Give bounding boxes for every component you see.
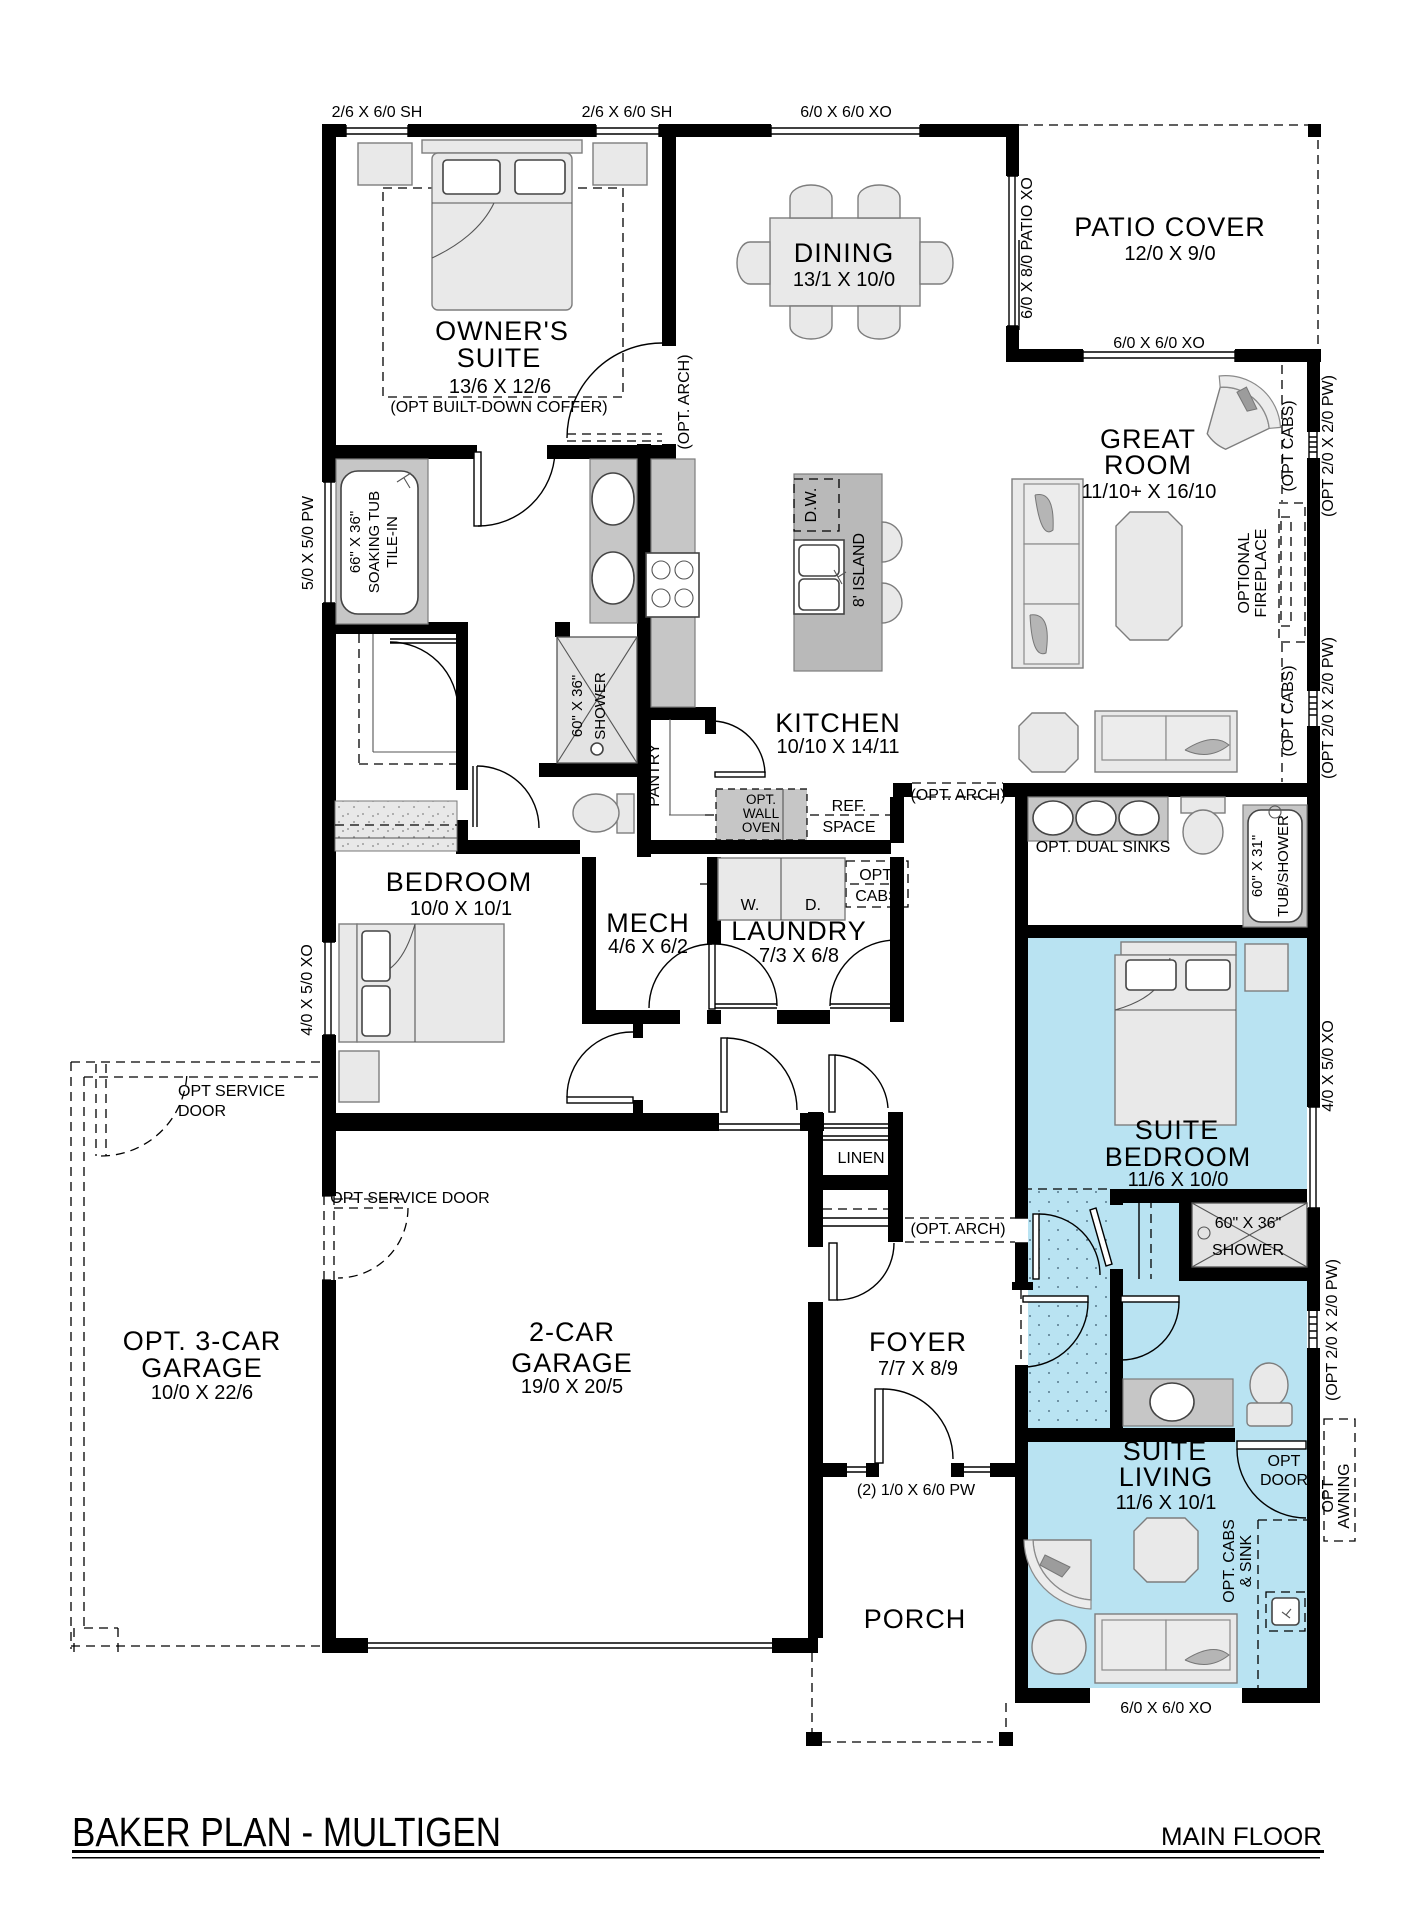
svg-text:(OPT 2/0 X 2/0 PW): (OPT 2/0 X 2/0 PW) (1320, 375, 1337, 517)
svg-text:SUITE: SUITE (457, 343, 542, 373)
svg-text:60" X 31": 60" X 31" (1249, 835, 1266, 897)
svg-text:13/1 X 10/0: 13/1 X 10/0 (793, 269, 895, 291)
svg-text:FOYER: FOYER (869, 1327, 967, 1357)
svg-text:2/6 X 6/0 SH: 2/6 X 6/0 SH (332, 104, 423, 121)
svg-text:OPT: OPT (1320, 1479, 1337, 1512)
svg-text:SUITE: SUITE (1135, 1115, 1220, 1145)
svg-text:(OPT. ARCH): (OPT. ARCH) (910, 1221, 1005, 1238)
svg-text:BEDROOM: BEDROOM (386, 867, 533, 897)
svg-text:CABS: CABS (855, 888, 899, 905)
svg-text:OPT SERVICE: OPT SERVICE (178, 1083, 285, 1100)
svg-text:(OPT CABS): (OPT CABS) (1280, 665, 1297, 756)
svg-text:DOOR: DOOR (1260, 1472, 1308, 1489)
svg-text:5/0 X 5/0 PW: 5/0 X 5/0 PW (300, 495, 317, 590)
svg-text:60" X 36": 60" X 36" (1215, 1215, 1282, 1232)
svg-text:MECH: MECH (606, 908, 690, 938)
svg-text:(OPT. ARCH): (OPT. ARCH) (676, 354, 693, 449)
svg-text:TUB/SHOWER: TUB/SHOWER (1275, 815, 1292, 917)
svg-text:(2) 1/0 X 6/0 PW: (2) 1/0 X 6/0 PW (857, 1482, 976, 1499)
svg-text:8' ISLAND: 8' ISLAND (851, 533, 868, 607)
svg-text:D.: D. (805, 897, 821, 914)
svg-text:FIREPLACE: FIREPLACE (1253, 529, 1270, 618)
svg-text:(OPT. ARCH): (OPT. ARCH) (910, 787, 1005, 804)
svg-text:13/6 X 12/6: 13/6 X 12/6 (449, 376, 551, 398)
svg-text:SHOWER: SHOWER (592, 672, 609, 740)
svg-text:OPT. 3-CAR: OPT. 3-CAR (123, 1326, 282, 1356)
svg-text:10/0 X 22/6: 10/0 X 22/6 (151, 1382, 253, 1404)
svg-text:4/6 X 6/2: 4/6 X 6/2 (608, 936, 688, 958)
svg-text:D.W.: D.W. (803, 488, 820, 523)
svg-text:OPT. DUAL SINKS: OPT. DUAL SINKS (1036, 839, 1171, 856)
svg-text:& SINK: & SINK (1238, 1534, 1255, 1587)
svg-text:SHOWER: SHOWER (1212, 1242, 1284, 1259)
svg-text:6/0 X 6/0 XO: 6/0 X 6/0 XO (1113, 335, 1205, 352)
svg-text:OPT. CABS: OPT. CABS (1221, 1519, 1238, 1603)
svg-text:LIVING: LIVING (1119, 1462, 1214, 1492)
svg-text:LAUNDRY: LAUNDRY (731, 916, 867, 946)
svg-text:2/6 X 6/0 SH: 2/6 X 6/0 SH (582, 104, 673, 121)
svg-text:(OPT 2/0 X 2/0 PW): (OPT 2/0 X 2/0 PW) (1324, 1259, 1341, 1401)
svg-text:OPT.: OPT. (859, 867, 895, 884)
svg-text:10/10 X 14/11: 10/10 X 14/11 (776, 736, 899, 758)
svg-text:(OPT 2/0 X 2/0 PW): (OPT 2/0 X 2/0 PW) (1320, 637, 1337, 779)
svg-text:OPTIONAL: OPTIONAL (1236, 532, 1253, 613)
svg-text:OWNER'S: OWNER'S (435, 316, 569, 346)
svg-text:W.: W. (741, 897, 760, 914)
svg-text:PANTRY: PANTRY (646, 743, 663, 807)
svg-text:OPT: OPT (1268, 1453, 1301, 1470)
svg-text:6/0 X 6/0 XO: 6/0 X 6/0 XO (800, 104, 892, 121)
svg-text:OPT.: OPT. (746, 792, 776, 807)
svg-text:4/0 X 5/0 XO: 4/0 X 5/0 XO (1320, 1020, 1337, 1112)
svg-text:AWNING: AWNING (1336, 1463, 1353, 1528)
svg-text:11/6 X 10/1: 11/6 X 10/1 (1116, 1492, 1217, 1514)
svg-text:OVEN: OVEN (742, 820, 780, 835)
svg-text:MAIN FLOOR: MAIN FLOOR (1161, 1823, 1322, 1851)
svg-text:KITCHEN: KITCHEN (775, 708, 901, 738)
svg-text:BEDROOM: BEDROOM (1105, 1142, 1252, 1172)
svg-text:(OPT BUILT-DOWN COFFER): (OPT BUILT-DOWN COFFER) (390, 399, 607, 416)
svg-text:60" X 36": 60" X 36" (569, 675, 586, 737)
svg-text:(OPT CABS): (OPT CABS) (1280, 400, 1297, 491)
svg-text:PORCH: PORCH (864, 1604, 967, 1634)
svg-text:7/3 X 6/8: 7/3 X 6/8 (759, 945, 839, 967)
svg-text:REF.: REF. (832, 798, 867, 815)
svg-text:GARAGE: GARAGE (141, 1353, 263, 1383)
svg-text:BAKER PLAN - MULTIGEN: BAKER PLAN - MULTIGEN (72, 1809, 501, 1855)
svg-text:LINEN: LINEN (837, 1150, 884, 1167)
svg-text:4/0 X 5/0 XO: 4/0 X 5/0 XO (299, 944, 316, 1036)
svg-text:GARAGE: GARAGE (511, 1348, 633, 1378)
svg-text:11/10+ X 16/10: 11/10+ X 16/10 (1082, 481, 1217, 503)
svg-text:ROOM: ROOM (1104, 450, 1192, 480)
svg-text:11/6 X 10/0: 11/6 X 10/0 (1128, 1169, 1229, 1191)
svg-text:10/0 X 10/1: 10/0 X 10/1 (410, 898, 512, 920)
svg-text:12/0 X 9/0: 12/0 X 9/0 (1124, 243, 1215, 265)
svg-text:OPT SERVICE DOOR: OPT SERVICE DOOR (330, 1190, 489, 1207)
svg-text:DOOR: DOOR (178, 1103, 226, 1120)
svg-text:19/0 X 20/5: 19/0 X 20/5 (521, 1376, 623, 1398)
svg-text:WALL: WALL (743, 806, 780, 821)
svg-text:DINING: DINING (794, 238, 895, 268)
svg-text:PATIO COVER: PATIO COVER (1074, 212, 1266, 242)
svg-text:6/0 X 8/0 PATIO XO: 6/0 X 8/0 PATIO XO (1019, 177, 1036, 319)
svg-text:7/7 X 8/9: 7/7 X 8/9 (878, 1358, 958, 1380)
svg-text:SPACE: SPACE (822, 819, 875, 836)
svg-text:2-CAR: 2-CAR (529, 1317, 615, 1347)
svg-text:6/0 X 6/0 XO: 6/0 X 6/0 XO (1120, 1700, 1212, 1717)
svg-text:TILE-IN: TILE-IN (384, 516, 401, 568)
svg-text:66" X 36": 66" X 36" (347, 511, 364, 573)
svg-text:SOAKING TUB: SOAKING TUB (366, 491, 383, 593)
